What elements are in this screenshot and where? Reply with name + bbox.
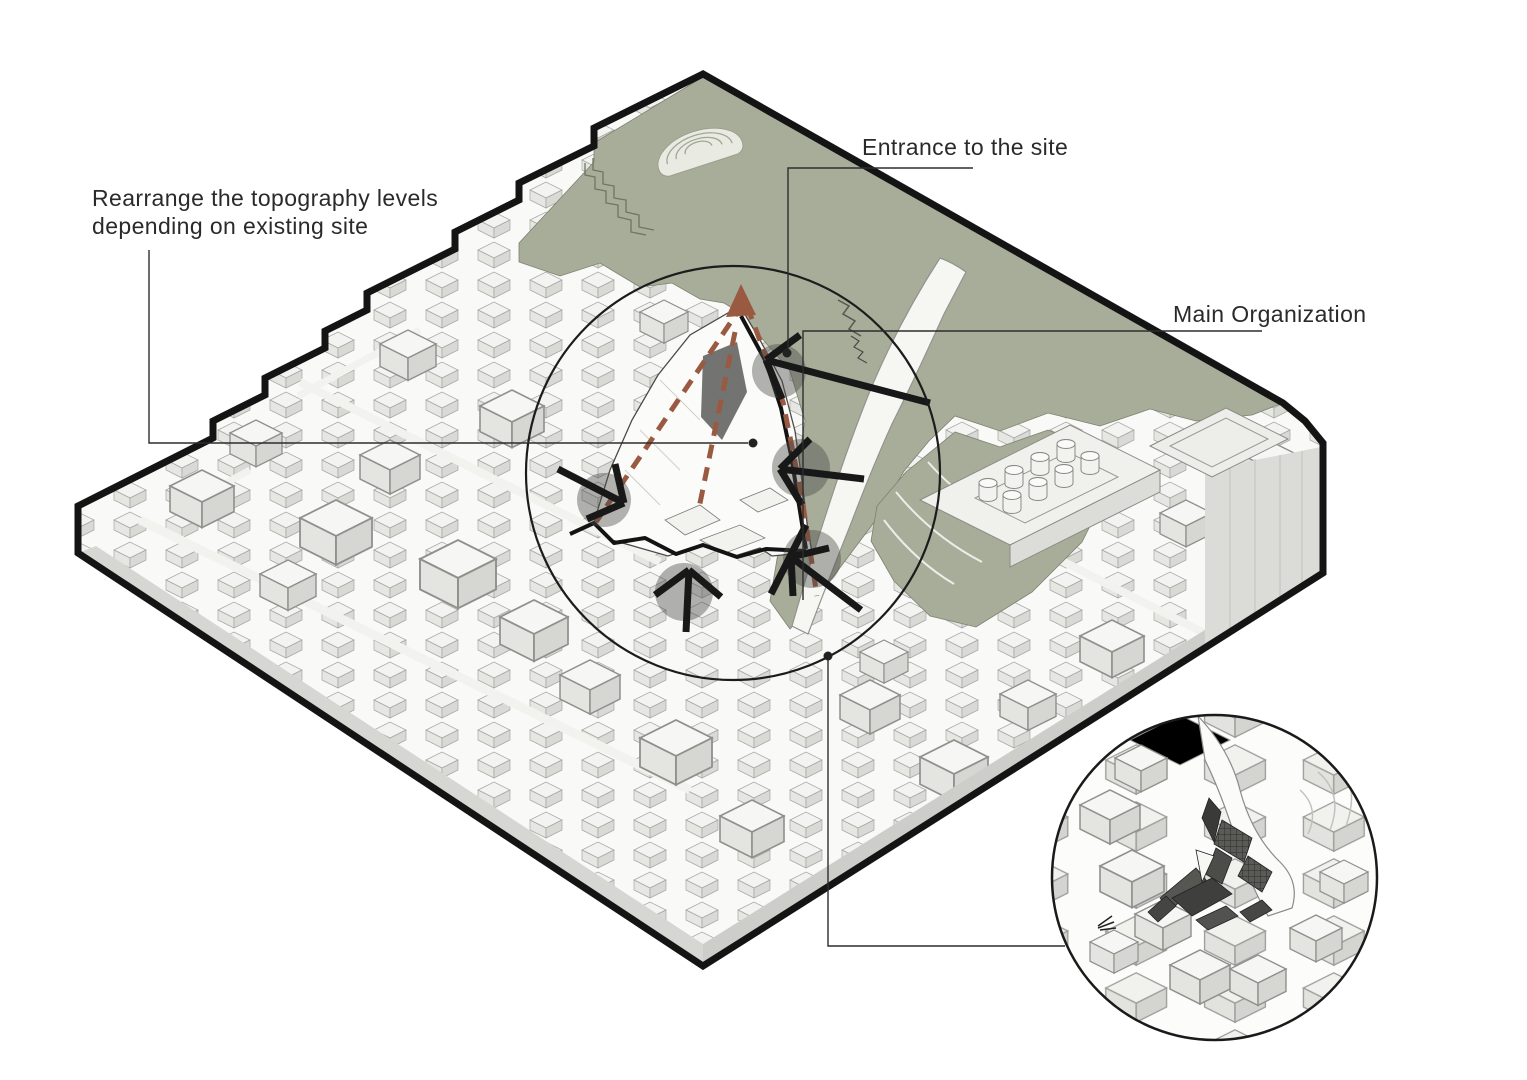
- topography-label-line2: depending on existing site: [92, 212, 438, 240]
- terrain-cliff: [1205, 447, 1321, 648]
- diagram-page: Rearrange the topography levels dependin…: [0, 0, 1527, 1080]
- leader-dot: [749, 439, 758, 448]
- site-plan-svg: [0, 0, 1527, 1080]
- leader-dot: [783, 349, 792, 358]
- organization-label: Main Organization: [1173, 300, 1366, 328]
- leader-dot: [824, 652, 833, 661]
- detail-inset: [1050, 713, 1382, 1045]
- entrance-label: Entrance to the site: [862, 133, 1068, 161]
- topography-label: Rearrange the topography levels dependin…: [92, 184, 438, 240]
- topography-label-line1: Rearrange the topography levels: [92, 184, 438, 212]
